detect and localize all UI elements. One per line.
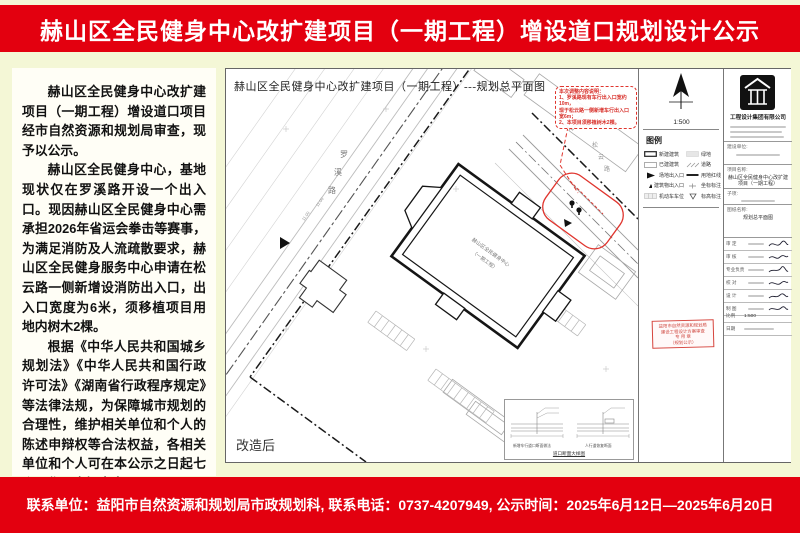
signature-row: 设 计 — [724, 290, 792, 303]
title-block: 工程设计集团有限公司 建设单位: 项目名称: 赫山区全民健身中心改扩建项目（一期… — [723, 69, 791, 462]
parking-swatch-icon — [644, 193, 657, 199]
note-line: 现于松云路一侧新增车行出入口宽6m； — [559, 108, 633, 120]
drawing-title: 赫山区全民健身中心改扩建项目（一期工程）---规划总平面图 — [234, 78, 546, 94]
cross-section-inset: 新增车行道口断面做法 人行道恢复断面 道口断面大样图 — [504, 399, 634, 460]
contact-bar: 联系单位：益阳市自然资源和规划局市政规划科, 联系电话：0737-4207949… — [0, 477, 800, 533]
signature-row: 专业负责 — [724, 264, 792, 277]
field-project: 项目名称: 赫山区全民健身中心改扩建项目（一期工程） — [724, 164, 792, 188]
dimension-labels: 11.00 11.00 — [301, 196, 325, 222]
legend-item: 绿地 — [686, 149, 726, 160]
plan-drawing-sheet: 赫山区全民健身中心改扩建项目（一期工程）---规划总平面图 改造后 — [225, 68, 791, 463]
field-sheet-name: 图纸名称: 规划总平面图 — [724, 204, 792, 222]
site-entrance-swatch-icon — [644, 172, 657, 179]
signature-row: 审 核 — [724, 251, 792, 264]
elevation-swatch-icon — [686, 193, 699, 200]
legend-divider — [643, 207, 719, 208]
company-name: 工程设计集团有限公司 — [724, 113, 792, 121]
legend-column: 1:500 图例 新建建筑 已建建筑 场地出入口 建筑物出入口 — [638, 69, 723, 462]
legend-left-column: 新建建筑 已建建筑 场地出入口 建筑物出入口 机动车车位 — [644, 149, 684, 202]
legend-item: 机动车车位 — [644, 191, 684, 202]
signature-scribble — [767, 239, 789, 249]
tree-markers — [569, 200, 581, 215]
design-institute-logo-icon — [740, 75, 775, 110]
legend-title: 图例 — [646, 135, 662, 146]
new-building-swatch-icon — [644, 151, 657, 157]
svg-text:罗: 罗 — [340, 150, 348, 159]
legend-item: 标高标注 — [686, 191, 726, 202]
songyun-road-label: 松 云 路 — [592, 141, 610, 173]
public-notice-poster: 赫山区全民健身中心改扩建项目（一期工程）增设道口规划设计公示 赫山区全民健身中心… — [0, 0, 800, 533]
signature-row: 校 对 — [724, 277, 792, 290]
svg-text:路: 路 — [604, 165, 610, 173]
svg-text:溪: 溪 — [334, 167, 342, 177]
north-arrow-icon — [639, 69, 724, 115]
field-subitem: 子项: — [724, 188, 792, 204]
notice-title: 赫山区全民健身中心改扩建项目（一期工程）增设道口规划设计公示 — [40, 12, 760, 46]
approval-stamp: 益阳市自然资源和规划局 建设工程设计方案审查 专 用 章 （规划公示） — [652, 319, 715, 349]
legend-right-column: 绿地 道路 用地红线 坐标标注 标高标注 — [686, 149, 726, 202]
signature-scribble — [767, 278, 789, 288]
field-owner: 建设单位: — [724, 141, 792, 164]
legend-item: 场地出入口 — [644, 170, 684, 181]
legend-divider — [643, 129, 719, 130]
redline-swatch-icon — [686, 172, 699, 178]
signature-scribble — [767, 252, 789, 262]
notice-paragraph: 赫山区全民健身中心改扩建项目（一期工程）增设道口项目经市自然资源和规划局审查，现… — [22, 82, 206, 160]
signature-scribble — [767, 291, 789, 301]
inset-left-caption: 新增车行道口断面做法 — [513, 444, 551, 449]
notice-title-bar: 赫山区全民健身中心改扩建项目（一期工程）增设道口规划设计公示 — [0, 5, 800, 52]
coordinate-swatch-icon — [686, 183, 699, 189]
inset-title: 道口断面大样图 — [505, 451, 633, 457]
legend-item: 新建建筑 — [644, 149, 684, 160]
note-line: 1、罗溪路现有车行出入口宽约10m， — [559, 95, 633, 107]
notice-paragraph: 根据《中华人民共和国城乡规划法》《中华人民共和国行政许可法》《湖南省行政程序规定… — [22, 337, 206, 494]
scale-row: 比例 1:500 — [724, 310, 792, 323]
notice-text-panel: 赫山区全民健身中心改扩建项目（一期工程）增设道口项目经市自然资源和规划局审查，现… — [12, 68, 216, 476]
signature-row: 审 定 — [724, 238, 792, 251]
contact-text: 联系单位：益阳市自然资源和规划局市政规划科, 联系电话：0737-4207949… — [27, 495, 774, 515]
legend-item: 已建建筑 — [644, 160, 684, 171]
note-line: 2、本项目须移植树木2棵。 — [559, 120, 633, 126]
main-gym-building: 赫山区全民健身中心 （一期工程） — [371, 144, 605, 367]
title-block-footer: 比例 1:500 日期 — [724, 310, 792, 336]
legend-item: 坐标标注 — [686, 181, 726, 192]
scale-label: 1:500 — [639, 119, 724, 126]
signature-scribble — [767, 265, 789, 275]
inset-right-caption: 人行道恢复断面 — [585, 444, 612, 449]
adjustment-note-box: 本次调整内容说明： 1、罗溪路现有车行出入口宽约10m， 现于松云路一侧新增车行… — [555, 86, 637, 129]
existing-building-swatch-icon — [644, 162, 657, 168]
svg-text:松: 松 — [592, 141, 598, 149]
building-entrance-swatch-icon — [644, 183, 652, 189]
legend-item: 建筑物出入口 — [644, 181, 684, 192]
after-renovation-label: 改造后 — [236, 435, 275, 454]
luoxi-road-label: 罗 溪 路 — [328, 150, 348, 195]
legend-item: 道路 — [686, 160, 726, 171]
title-block-fields: 建设单位: 项目名称: 赫山区全民健身中心改扩建项目（一期工程） 子项: 图纸名… — [724, 141, 792, 222]
road-swatch-icon — [686, 162, 699, 168]
cross-section-diagrams — [505, 400, 633, 444]
legend-item: 用地红线 — [686, 170, 726, 181]
svg-text:路: 路 — [328, 185, 336, 195]
date-row: 日期 — [724, 323, 792, 336]
signature-table: 审 定 审 核 专业负责 校 对 设 计 — [724, 237, 792, 316]
svg-text:云: 云 — [598, 154, 604, 161]
certificate-lines — [730, 123, 786, 141]
notice-paragraph: 赫山区全民健身中心，基地现状仅在罗溪路开设一个出入口。现因赫山区全民健身中心需承… — [22, 160, 206, 336]
greenspace-swatch-icon — [686, 151, 699, 157]
svg-text:11.00: 11.00 — [315, 196, 325, 208]
